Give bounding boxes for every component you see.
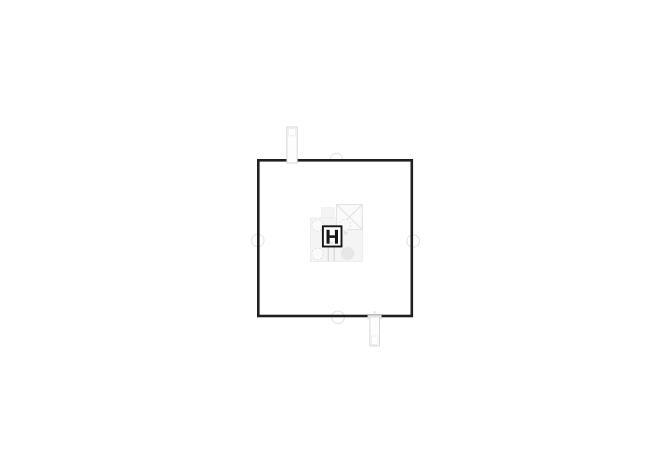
central-core <box>310 205 362 262</box>
floor-plan-svg <box>0 0 670 474</box>
duct-interior-mark <box>374 311 376 314</box>
duct-fixture-bottom <box>368 311 382 346</box>
dashed-column-circle-top-left <box>312 220 323 231</box>
chimney-fixture-top <box>287 127 297 163</box>
drawing-canvas <box>0 0 670 474</box>
duct-inner-cell <box>372 336 378 344</box>
core-upper-band <box>322 208 335 218</box>
chimney-inner-cell <box>289 129 296 136</box>
h-shaft-crossbar <box>330 235 335 238</box>
circle-symbol-right-wall <box>407 235 420 248</box>
filled-column-circle-bottom-right <box>341 247 353 259</box>
h-shaft-right-bar <box>335 230 338 244</box>
core-side-mark <box>344 232 347 235</box>
dashed-column-circle-bottom-left <box>312 248 323 259</box>
h-shaft-left-bar <box>327 230 330 244</box>
h-shaft-symbol <box>323 226 342 246</box>
door-arc-symbol-top-wall <box>330 153 342 159</box>
